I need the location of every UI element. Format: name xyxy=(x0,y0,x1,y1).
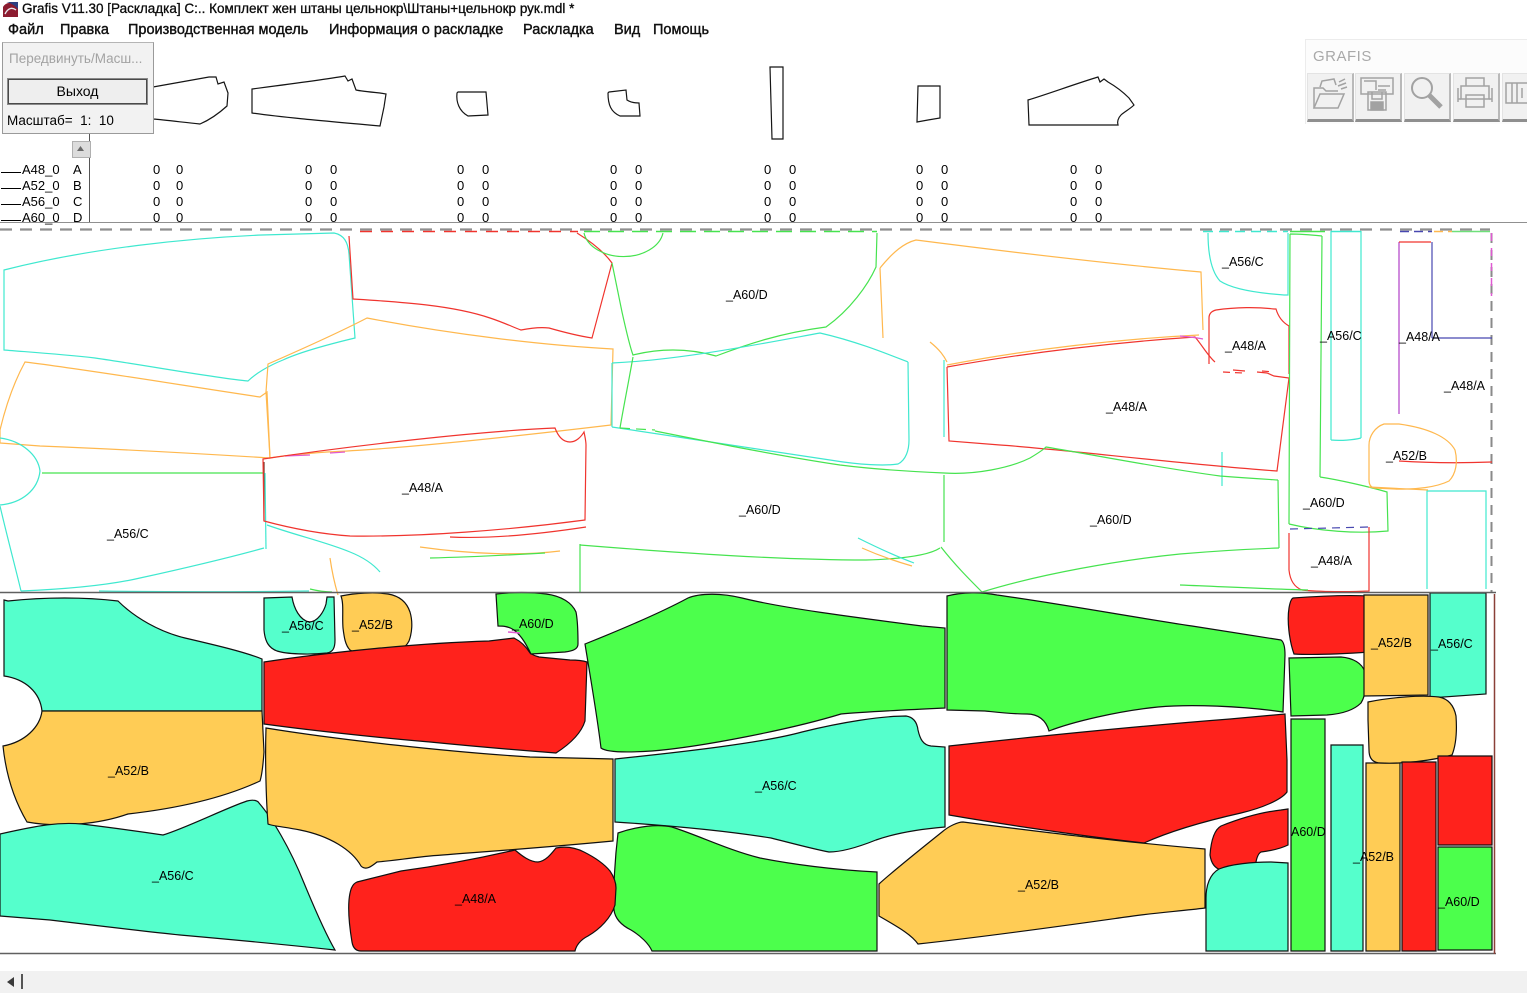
svg-text:0: 0 xyxy=(153,162,160,177)
svg-text:_A48/A: _A48/A xyxy=(1398,330,1441,344)
svg-text:0: 0 xyxy=(1070,194,1077,209)
svg-text:A56_0: A56_0 xyxy=(22,194,60,209)
svg-text:_A56/C: _A56/C xyxy=(1221,255,1264,269)
svg-text:_A56/C: _A56/C xyxy=(151,869,194,883)
svg-text:0: 0 xyxy=(305,162,312,177)
svg-text:C: C xyxy=(73,194,82,209)
svg-text:_A56/C: _A56/C xyxy=(1319,329,1362,343)
svg-text:_A48/A: _A48/A xyxy=(1224,339,1267,353)
svg-text:_A48/A: _A48/A xyxy=(1310,554,1353,568)
svg-text:0: 0 xyxy=(635,194,642,209)
svg-text:_A52/B: _A52/B xyxy=(1385,449,1427,463)
svg-text:0: 0 xyxy=(1070,162,1077,177)
svg-text:_A52/B: _A52/B xyxy=(1017,878,1059,892)
svg-text:0: 0 xyxy=(635,178,642,193)
svg-text:0: 0 xyxy=(1095,194,1102,209)
svg-text:_A48/A: _A48/A xyxy=(1443,379,1486,393)
svg-text:0: 0 xyxy=(330,162,337,177)
svg-text:0: 0 xyxy=(482,178,489,193)
svg-text:A48_0: A48_0 xyxy=(22,162,60,177)
svg-text:0: 0 xyxy=(176,178,183,193)
svg-text:0: 0 xyxy=(916,178,923,193)
svg-text:A: A xyxy=(73,162,82,177)
svg-text:0: 0 xyxy=(482,162,489,177)
svg-text:_A56/C: _A56/C xyxy=(106,527,149,541)
svg-text:0: 0 xyxy=(789,178,796,193)
svg-text:0: 0 xyxy=(916,194,923,209)
svg-text:0: 0 xyxy=(482,194,489,209)
svg-text:0: 0 xyxy=(1070,178,1077,193)
svg-text:_A56/C: _A56/C xyxy=(754,779,797,793)
svg-text:0: 0 xyxy=(941,178,948,193)
svg-text:0: 0 xyxy=(305,178,312,193)
svg-text:_A48/A: _A48/A xyxy=(1105,400,1148,414)
svg-text:0: 0 xyxy=(610,194,617,209)
svg-text:0: 0 xyxy=(635,162,642,177)
svg-text:0: 0 xyxy=(330,194,337,209)
svg-text:0: 0 xyxy=(305,194,312,209)
svg-text:0: 0 xyxy=(789,194,796,209)
svg-text:0: 0 xyxy=(916,162,923,177)
svg-text:0: 0 xyxy=(764,162,771,177)
svg-text:A52_0: A52_0 xyxy=(22,178,60,193)
svg-text:0: 0 xyxy=(153,194,160,209)
svg-text:0: 0 xyxy=(176,162,183,177)
svg-text:0: 0 xyxy=(941,162,948,177)
svg-text:0: 0 xyxy=(1095,178,1102,193)
svg-text:_A60/D: _A60/D xyxy=(1437,895,1480,909)
svg-text:0: 0 xyxy=(1095,162,1102,177)
svg-text:_A60/D: _A60/D xyxy=(1302,496,1345,510)
svg-text:0: 0 xyxy=(941,194,948,209)
svg-text:0: 0 xyxy=(153,178,160,193)
svg-text:_A60/D: _A60/D xyxy=(511,617,554,631)
svg-text:_A52/B: _A52/B xyxy=(351,618,393,632)
svg-text:_A60/D: _A60/D xyxy=(1089,513,1132,527)
svg-text:_A56/C: _A56/C xyxy=(1430,637,1473,651)
svg-text:0: 0 xyxy=(330,178,337,193)
svg-text:0: 0 xyxy=(176,194,183,209)
svg-text:0: 0 xyxy=(610,178,617,193)
svg-text:_A48/A: _A48/A xyxy=(401,481,444,495)
svg-text:_A60/D: _A60/D xyxy=(725,288,768,302)
svg-text:_A52/B: _A52/B xyxy=(1370,636,1412,650)
svg-text:0: 0 xyxy=(789,162,796,177)
svg-text:0: 0 xyxy=(764,178,771,193)
svg-text:0: 0 xyxy=(457,162,464,177)
svg-text:0: 0 xyxy=(457,178,464,193)
svg-text:_A52/B: _A52/B xyxy=(1352,850,1394,864)
svg-text:_A60/D: _A60/D xyxy=(738,503,781,517)
svg-text:0: 0 xyxy=(610,162,617,177)
svg-text:_A56/C: _A56/C xyxy=(281,619,324,633)
svg-text:0: 0 xyxy=(764,194,771,209)
svg-text:_A52/B: _A52/B xyxy=(107,764,149,778)
svg-text:A60/D: A60/D xyxy=(1291,825,1326,839)
svg-text:0: 0 xyxy=(457,194,464,209)
svg-text:_A48/A: _A48/A xyxy=(454,892,497,906)
svg-text:B: B xyxy=(73,178,82,193)
